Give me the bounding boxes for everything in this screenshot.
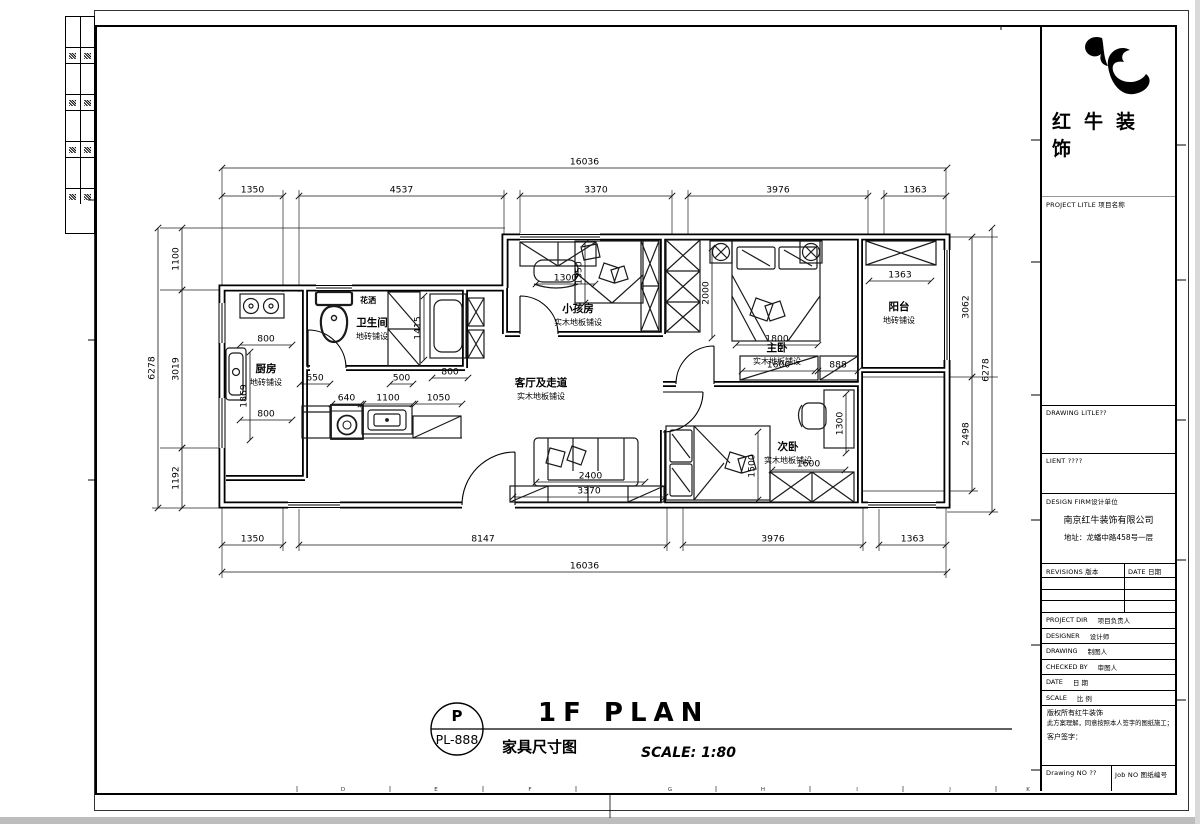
toilet bbox=[316, 292, 352, 342]
room-label: 客厅及走道实木地板铺设 bbox=[514, 376, 568, 401]
title-block-row: PROJECT DIR项目负责人 bbox=[1042, 612, 1175, 628]
grid-letter: I bbox=[856, 787, 858, 793]
kitchen-stove bbox=[240, 294, 284, 318]
scale-note: SCALE: 1:80 bbox=[641, 745, 736, 761]
svg-text:实木地板铺设: 实木地板铺设 bbox=[517, 391, 565, 401]
dim-label: 1350 bbox=[241, 185, 265, 196]
dim-label: 6278 bbox=[981, 358, 992, 382]
dimension: 3019 bbox=[171, 287, 186, 451]
dim-label: 3370 bbox=[577, 486, 601, 497]
customer-signature-label: 客户签字： bbox=[1047, 732, 1082, 742]
washing-machine bbox=[331, 405, 363, 439]
title-block-row: DATE日 期 bbox=[1042, 674, 1175, 690]
svg-text:地砖铺设: 地砖铺设 bbox=[883, 315, 915, 325]
dimension: 2400 bbox=[533, 471, 648, 486]
dim-label: 4537 bbox=[390, 185, 414, 196]
svg-text:实木地板铺设: 实木地板铺设 bbox=[764, 455, 812, 465]
dim-label: 1869 bbox=[239, 384, 250, 408]
plan-title: 1F PLAN bbox=[538, 698, 709, 728]
dimension: 1300 bbox=[533, 273, 598, 288]
dim-label: 16036 bbox=[570, 157, 599, 168]
dim-label: 650 bbox=[306, 373, 324, 384]
dim-label: 500 bbox=[393, 373, 411, 384]
hall-shoe-cabinets bbox=[468, 298, 484, 358]
dimension: 1363 bbox=[866, 270, 934, 285]
dim-label: 1415 bbox=[413, 316, 424, 340]
title-block-row: SCALE比 例 bbox=[1042, 690, 1175, 706]
dim-label: 3976 bbox=[766, 185, 790, 196]
fixture-label: 花洒 bbox=[360, 295, 376, 305]
dim-label: 800 bbox=[257, 334, 275, 345]
dim-label: 800 bbox=[257, 409, 275, 420]
svg-text:卫生间: 卫生间 bbox=[356, 316, 388, 329]
dimension: 3976 bbox=[685, 185, 871, 200]
dim-label: 3370 bbox=[584, 185, 608, 196]
dimension: 888 bbox=[815, 360, 861, 375]
dimension: 1100 bbox=[171, 225, 186, 293]
dimension: 1363 bbox=[876, 534, 949, 549]
dim-label: 1350 bbox=[574, 261, 585, 285]
dimension: 1300 bbox=[835, 391, 850, 456]
dimension: 800 bbox=[237, 409, 295, 424]
drawing-no-label: Drawing NO ?? bbox=[1046, 769, 1097, 777]
svg-text:实木地板铺设: 实木地板铺设 bbox=[554, 317, 602, 327]
dim-label: 3019 bbox=[171, 357, 182, 381]
title-block-row: DESIGNER设计师 bbox=[1042, 628, 1175, 644]
dim-label: 1350 bbox=[241, 534, 265, 545]
svg-text:实木地板铺设: 实木地板铺设 bbox=[753, 356, 801, 366]
master-wardrobe bbox=[666, 240, 700, 332]
dimension: 3370 bbox=[517, 185, 675, 200]
balcony-cabinet bbox=[866, 241, 936, 265]
room-label: 小孩房实木地板铺设 bbox=[554, 302, 602, 327]
dimension: 6278 bbox=[981, 225, 996, 515]
title-block: 红牛装饰 PROJECT LITLE 项目名称 DRAWING LITLE?? … bbox=[1040, 25, 1175, 791]
dimension: 1350 bbox=[219, 185, 286, 200]
svg-text:地砖铺设: 地砖铺设 bbox=[356, 331, 388, 341]
room-label: 次卧实木地板铺设 bbox=[764, 440, 812, 465]
dimension: 6278 bbox=[147, 225, 162, 511]
dim-label: 16036 bbox=[570, 561, 599, 572]
dim-label: 2000 bbox=[701, 281, 712, 305]
child-wardrobe bbox=[641, 241, 659, 331]
dim-label: 1500 bbox=[747, 454, 758, 478]
dimension: 1363 bbox=[881, 185, 949, 200]
grid-letters: DEFGHIJK bbox=[297, 786, 1030, 793]
dimension: 1350 bbox=[219, 534, 286, 549]
grid-letter: J bbox=[948, 787, 951, 793]
room-label: 阳台地砖铺设 bbox=[883, 300, 915, 325]
dimension: 2000 bbox=[701, 245, 716, 341]
svg-text:主卧: 主卧 bbox=[767, 341, 788, 354]
dim-label: 888 bbox=[829, 360, 847, 371]
stamp-number: PL-888 bbox=[429, 732, 485, 747]
dim-label: 3062 bbox=[961, 295, 972, 318]
dimension: 16036 bbox=[219, 157, 950, 172]
dim-label: 2498 bbox=[961, 422, 972, 446]
dimension: 1050 bbox=[412, 393, 465, 408]
svg-text:小孩房: 小孩房 bbox=[561, 302, 594, 315]
room-label: 厨房地砖铺设 bbox=[250, 362, 282, 387]
room-label: 卫生间地砖铺设 bbox=[356, 316, 388, 341]
grid-letter: K bbox=[1026, 787, 1030, 793]
grid-letter: D bbox=[341, 787, 345, 793]
signature-rows: PROJECT DIR项目负责人DESIGNER设计师DRAWING制图人CHE… bbox=[1042, 25, 1175, 791]
dimension: 2498 bbox=[961, 374, 976, 494]
dim-label: 1100 bbox=[171, 247, 182, 271]
dimension: 16036 bbox=[219, 561, 950, 576]
dim-label: 1363 bbox=[888, 270, 912, 281]
counter-cabinet bbox=[413, 416, 461, 438]
dimension: 1500 bbox=[747, 429, 762, 503]
dim-label: 6278 bbox=[147, 356, 158, 380]
job-no-label: Job NO 图纸编号 bbox=[1115, 769, 1167, 779]
svg-text:客厅及走道: 客厅及走道 bbox=[514, 376, 568, 389]
dim-label: 1100 bbox=[376, 393, 400, 404]
title-block-row: DRAWING制图人 bbox=[1042, 643, 1175, 659]
dimension: 800 bbox=[237, 334, 295, 349]
title-block-row: CHECKED BY审图人 bbox=[1042, 659, 1175, 675]
dim-label: 1363 bbox=[903, 185, 927, 196]
grid-letter: F bbox=[528, 787, 531, 793]
dimension: 8147 bbox=[296, 534, 670, 549]
dimension: 3976 bbox=[680, 534, 866, 549]
dim-label: 800 bbox=[441, 367, 459, 378]
svg-text:次卧: 次卧 bbox=[778, 440, 799, 453]
svg-text:地砖铺设: 地砖铺设 bbox=[250, 377, 282, 387]
grid-letter: G bbox=[668, 787, 672, 793]
dim-label: 2400 bbox=[579, 471, 603, 482]
dim-label: 1363 bbox=[901, 534, 925, 545]
second-cabinet bbox=[770, 472, 854, 502]
dim-label: 1300 bbox=[835, 412, 846, 436]
copyright-line1: 版权所有红牛装饰 bbox=[1047, 708, 1103, 718]
dim-label: 1192 bbox=[171, 466, 182, 489]
svg-text:阳台: 阳台 bbox=[889, 300, 910, 313]
plan-subtitle: 家具尺寸图 bbox=[502, 736, 577, 757]
dimension: 1100 bbox=[360, 393, 416, 408]
dimension: 1350 bbox=[574, 240, 589, 306]
dim-label: 640 bbox=[338, 393, 356, 404]
dim-label: 3976 bbox=[761, 534, 785, 545]
dimension: 1192 bbox=[171, 445, 186, 511]
dimension: 4537 bbox=[296, 185, 507, 200]
svg-text:厨房: 厨房 bbox=[256, 362, 277, 375]
dim-label: 1050 bbox=[427, 393, 451, 404]
grid-letter: E bbox=[434, 787, 438, 793]
copyright-line2: 此方案理解，同意按照本人签字的图纸施工； bbox=[1047, 718, 1173, 727]
bath-bench bbox=[430, 294, 466, 358]
dimension: 500 bbox=[387, 373, 416, 388]
dimension: 3370 bbox=[510, 486, 668, 501]
dim-label: 8147 bbox=[471, 534, 495, 545]
bedside-lamps bbox=[710, 241, 822, 263]
no-divider bbox=[1111, 765, 1112, 791]
grid-letter: H bbox=[761, 787, 765, 793]
counter-basin bbox=[362, 406, 412, 434]
stamp-letter: P bbox=[433, 707, 481, 725]
drawing-sheet: 1603613504537337039761363135081473976136… bbox=[0, 0, 1200, 824]
dimension: 3062 bbox=[961, 234, 976, 380]
